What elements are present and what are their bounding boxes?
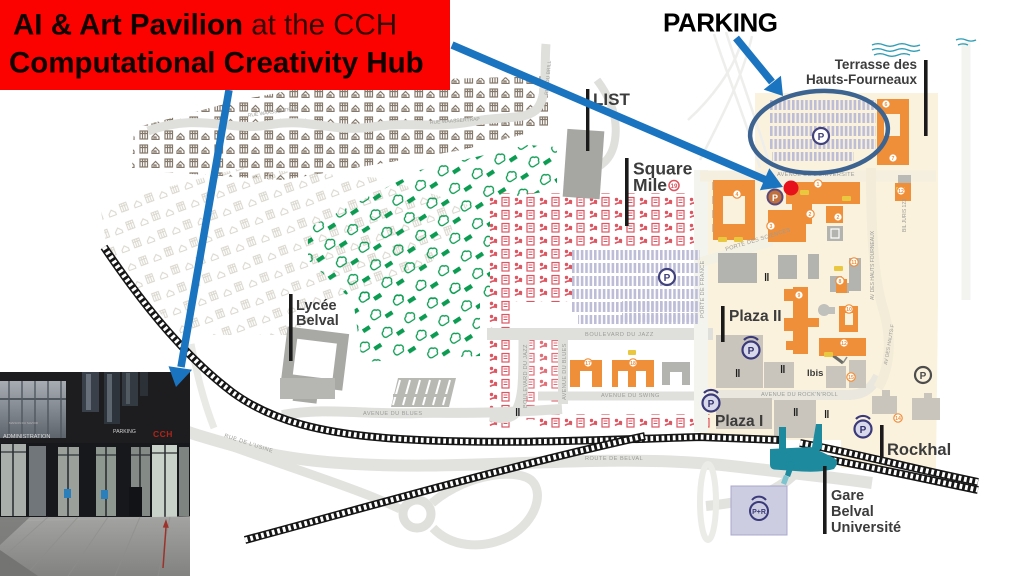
svg-text:CCH: CCH <box>153 429 173 439</box>
svg-text:Rockhal: Rockhal <box>887 441 951 459</box>
svg-text:7: 7 <box>892 156 895 162</box>
svg-text:3: 3 <box>770 224 773 230</box>
svg-text:P: P <box>772 193 778 203</box>
svg-text:Computational Creativity Hub: Computational Creativity Hub <box>9 47 424 80</box>
svg-text:‖: ‖ <box>780 364 785 376</box>
svg-text:P: P <box>818 132 825 143</box>
svg-text:4: 4 <box>736 192 739 198</box>
svg-text:P+R: P+R <box>752 509 766 516</box>
svg-text:MAISON DU SAVOIR: MAISON DU SAVOIR <box>9 421 39 425</box>
svg-text:‖: ‖ <box>515 407 520 419</box>
svg-text:BIL JURIS 123: BIL JURIS 123 <box>902 199 908 232</box>
svg-text:BOULEVARD DU JAZZ: BOULEVARD DU JAZZ <box>585 332 654 338</box>
svg-text:Mile: Mile <box>633 175 667 195</box>
svg-text:11: 11 <box>851 260 857 266</box>
svg-text:15: 15 <box>848 375 854 381</box>
svg-text:Université: Université <box>831 520 901 536</box>
svg-text:ADMINISTRATION: ADMINISTRATION <box>3 434 50 440</box>
svg-text:12: 12 <box>841 341 847 347</box>
svg-text:P: P <box>708 399 715 410</box>
svg-text:Plaza I: Plaza I <box>715 413 763 430</box>
svg-text:Gare: Gare <box>831 488 864 504</box>
svg-text:AV DES HAUTS FOURNEAUX: AV DES HAUTS FOURNEAUX <box>870 230 876 300</box>
svg-text:AI & Art Pavilion at the CCH: AI & Art Pavilion at the CCH <box>13 9 397 42</box>
svg-text:9: 9 <box>798 293 801 299</box>
svg-text:P: P <box>748 346 755 357</box>
svg-text:2: 2 <box>837 215 840 221</box>
svg-text:6: 6 <box>885 102 888 108</box>
svg-text:BOULEVARD DU JAZZ: BOULEVARD DU JAZZ <box>523 344 529 408</box>
svg-text:2: 2 <box>809 212 812 218</box>
svg-text:14: 14 <box>895 416 901 422</box>
svg-text:‖: ‖ <box>824 409 829 421</box>
svg-text:18: 18 <box>630 361 636 367</box>
svg-text:P: P <box>860 425 867 436</box>
svg-text:‖: ‖ <box>793 407 798 419</box>
svg-text:8: 8 <box>839 279 842 285</box>
svg-text:17: 17 <box>585 361 591 367</box>
svg-text:Ibis: Ibis <box>807 368 823 379</box>
svg-text:AVENUE DU BLUES: AVENUE DU BLUES <box>562 343 568 400</box>
svg-text:PORTE DE FRANCE: PORTE DE FRANCE <box>700 260 706 318</box>
svg-text:P: P <box>920 371 927 382</box>
svg-text:10: 10 <box>846 307 852 313</box>
svg-text:P: P <box>664 273 671 284</box>
svg-text:Lycée: Lycée <box>296 298 337 314</box>
svg-text:Belval: Belval <box>831 504 874 520</box>
svg-text:AVENUE DU ROCK'N'ROLL: AVENUE DU ROCK'N'ROLL <box>761 392 838 398</box>
svg-text:PARKING: PARKING <box>113 429 136 435</box>
svg-text:AVENUE DU BLUES: AVENUE DU BLUES <box>363 411 423 417</box>
svg-text:Belval: Belval <box>296 313 339 329</box>
svg-text:1: 1 <box>817 182 820 188</box>
svg-text:12: 12 <box>898 189 904 195</box>
svg-text:Hauts-Fourneaux: Hauts-Fourneaux <box>806 72 918 87</box>
svg-text:AVENUE DU SWING: AVENUE DU SWING <box>601 393 660 399</box>
svg-text:PARKING: PARKING <box>663 8 777 38</box>
svg-text:19: 19 <box>671 184 678 190</box>
svg-text:Plaza II: Plaza II <box>729 308 782 325</box>
svg-text:‖: ‖ <box>735 368 740 380</box>
svg-text:Terrasse des: Terrasse des <box>835 57 917 72</box>
svg-text:‖: ‖ <box>764 272 769 284</box>
svg-text:ROUTE DE BELVAL: ROUTE DE BELVAL <box>585 456 643 462</box>
